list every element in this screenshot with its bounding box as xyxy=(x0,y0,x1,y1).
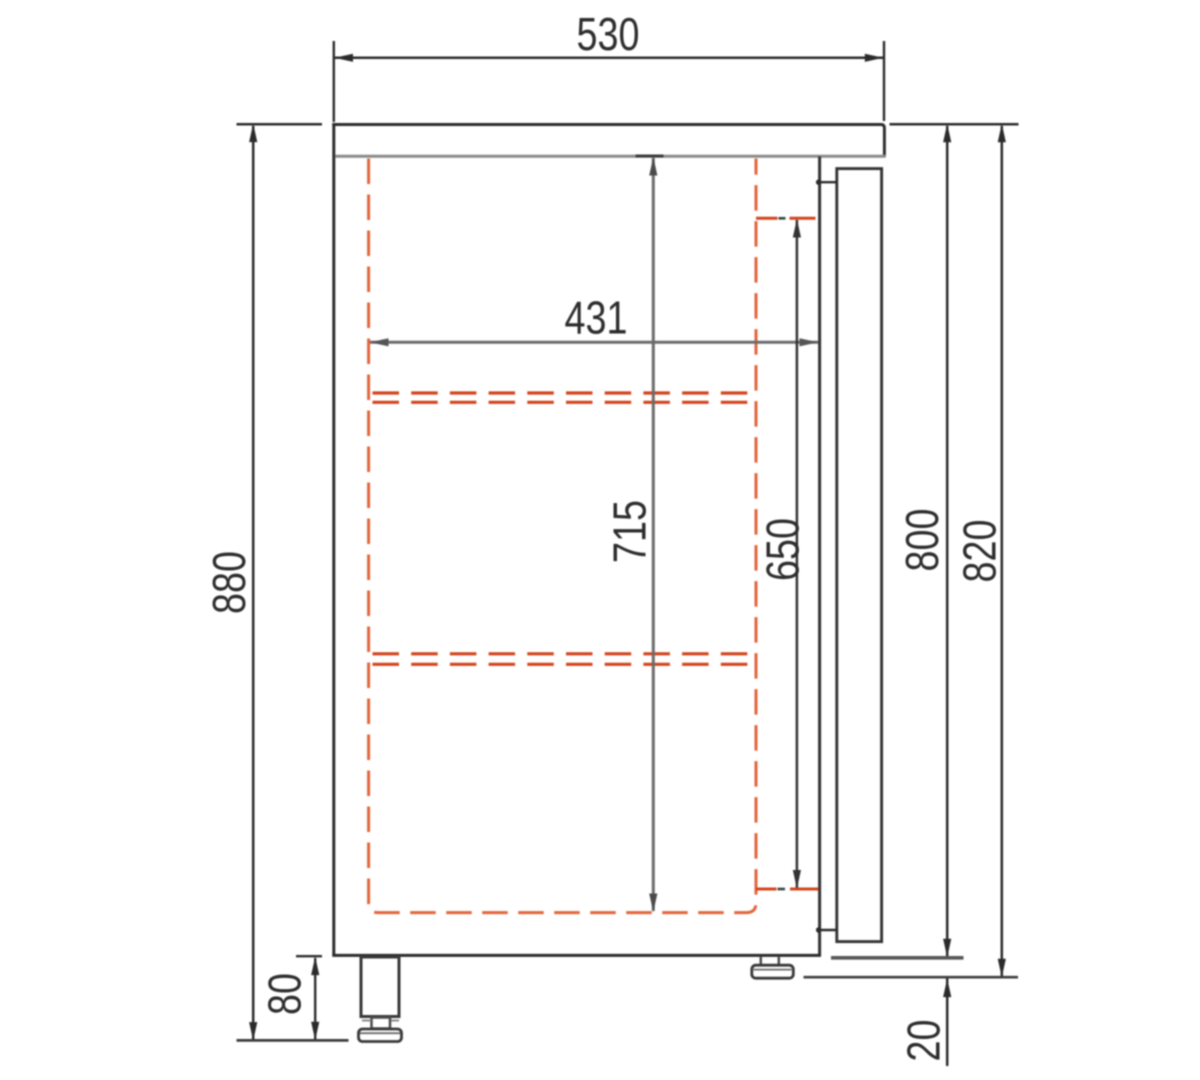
svg-text:80: 80 xyxy=(259,973,310,1015)
svg-text:650: 650 xyxy=(757,518,808,581)
svg-text:530: 530 xyxy=(577,8,640,59)
svg-text:800: 800 xyxy=(896,509,947,572)
svg-text:880: 880 xyxy=(203,551,254,614)
svg-text:431: 431 xyxy=(565,292,628,343)
svg-text:715: 715 xyxy=(604,500,655,563)
svg-text:20: 20 xyxy=(898,1020,949,1062)
svg-text:820: 820 xyxy=(954,520,1005,583)
